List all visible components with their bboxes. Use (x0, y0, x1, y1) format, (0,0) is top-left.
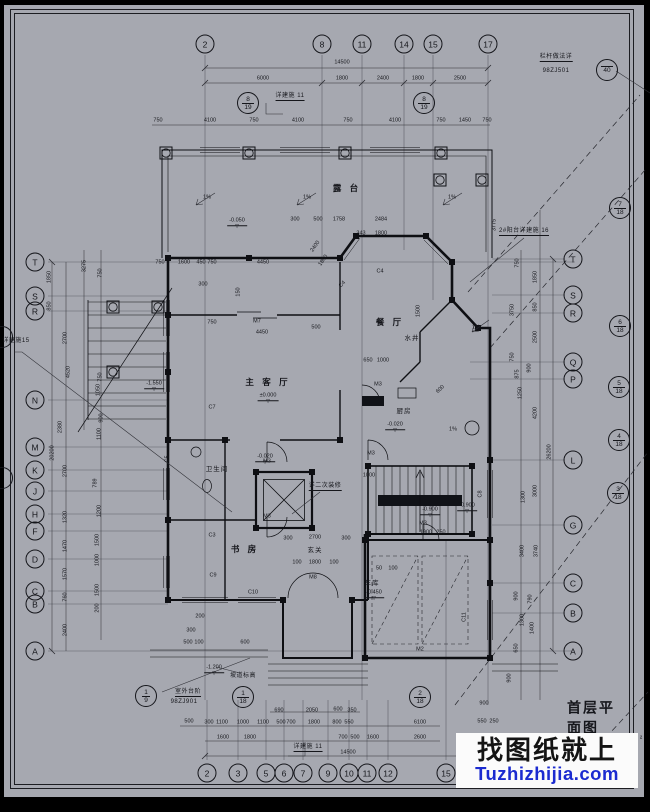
dimension-label: 2400 (377, 76, 389, 82)
room-label: 玄关 (308, 548, 323, 555)
dimension-label: 3750 (510, 304, 516, 316)
note-label: 98ZJ901 (171, 699, 198, 705)
room-label: 车库 (365, 581, 380, 588)
section-sheet-no: 8 (246, 96, 250, 103)
dimension-label: 1000 (377, 358, 389, 364)
dimension-label: 550 (477, 719, 486, 725)
dimension-label: 750 (98, 372, 104, 381)
opening-tag: C7 (208, 405, 215, 411)
note-label: 栏杆做法详 (540, 54, 573, 62)
dimension-label: 4100 (292, 118, 304, 124)
dimension-label: 850 (47, 301, 53, 310)
dimension-label: 1800 (375, 231, 387, 237)
section-sheet-no: 8 (422, 96, 426, 103)
dimension-label: 1600 (217, 735, 229, 741)
dimension-label: 1800 (244, 735, 256, 741)
grid-bubble-left: A (26, 642, 45, 661)
dimension-label: 1400 (530, 622, 536, 634)
dimension-label: 500 (313, 217, 322, 223)
opening-tag: C8 (478, 490, 484, 497)
dimension-label: 4100 (389, 118, 401, 124)
dimension-label: 790 (528, 594, 534, 603)
section-mark: 318 (607, 482, 629, 504)
section-mark: 518 (608, 376, 630, 398)
section-sheet-no: 2 (418, 690, 422, 697)
section-page-no: 19 (242, 103, 253, 111)
dimension-label: 300 (198, 282, 207, 288)
note-label: 98ZJ501 (543, 68, 570, 74)
dimension-label: 200 (195, 614, 204, 620)
dimension-label: 900 (507, 673, 513, 682)
dimension-label: 1800 (336, 76, 348, 82)
note-label: 室外台阶 (175, 689, 201, 697)
dimension-label: 500 (184, 719, 193, 725)
section-mark: 40 (596, 59, 618, 81)
dimension-label: 800 (332, 720, 341, 726)
section-page-no: 18 (612, 493, 623, 501)
dimension-label: 300 (290, 217, 299, 223)
dimension-label: 14500 (340, 750, 355, 756)
room-label: 主 客 厅 (245, 378, 290, 387)
grid-bubble-left: F (26, 522, 45, 541)
section-mark: 819 (413, 92, 435, 114)
dimension-label: 1450 (459, 118, 471, 124)
dimension-label: 750 (153, 118, 162, 124)
dashed-lines (455, 95, 648, 760)
dimension-label: 1000 (95, 554, 101, 566)
dimension-label: 750 (207, 320, 216, 326)
grid-bubble-right: R (564, 304, 583, 323)
dimension-label: 4450 (257, 260, 269, 266)
dimension-label: 1% (303, 195, 311, 201)
dimension-label: 1320 (63, 511, 69, 523)
dimension-label: 1100 (216, 720, 228, 726)
note-label: 详二次装修 (309, 483, 342, 491)
elevation-label: ±0.000 (258, 393, 279, 401)
dimension-label: 4520 (66, 366, 72, 378)
leader-lines (14, 71, 650, 756)
dimension-label: 750 (482, 118, 491, 124)
opening-tag: C5 (165, 455, 171, 462)
grid-bubble-bottom: 6 (275, 764, 294, 783)
elevation-label: -0.900 (420, 507, 440, 515)
grid-bubble-bottom: 10 (340, 764, 359, 783)
room-label: 水井 (405, 336, 420, 343)
watermark-site-url: Tuzhizhijia.com (475, 764, 619, 783)
wall-junctions (165, 233, 493, 661)
dimension-label: 4450 (256, 330, 268, 336)
dimension-label: 300 (204, 720, 213, 726)
grid-bubble-bottom: 9 (319, 764, 338, 783)
grid-bubble-bottom: 3 (229, 764, 248, 783)
dimension-label: 2600 (414, 735, 426, 741)
elevation-label: -0.050 (227, 218, 247, 226)
elevation-label: -0.020 (385, 422, 405, 430)
dimension-label: 750 (155, 260, 164, 266)
dimension-label: 2484 (375, 217, 387, 223)
grid-bubble-top: 8 (313, 35, 332, 54)
room-label: 露 台 (333, 184, 361, 193)
dimension-label: 900 (479, 701, 488, 707)
grid-bubble-bottom: 2 (198, 764, 217, 783)
dimension-label: 1500 (95, 534, 101, 546)
opening-tag: C10 (248, 590, 258, 596)
dimension-label: 100 (292, 560, 301, 566)
grid-bubble-bottom: 12 (379, 764, 398, 783)
dimension-label: 500 (350, 735, 359, 741)
dimension-label: 1500 (95, 584, 101, 596)
grid-bubble-right: P (564, 370, 583, 389)
dimension-label: 26200 (547, 444, 553, 459)
section-mark: 819 (237, 92, 259, 114)
dimension-label: 1800 (308, 720, 320, 726)
dimension-label: 6100 (414, 720, 426, 726)
grid-bubble-right: G (564, 516, 583, 535)
opening-tag: M3 (367, 451, 375, 457)
grid-bubble-left: M (26, 438, 45, 457)
grid-bubble-top: 17 (479, 35, 498, 54)
dimension-label: 6000 (257, 76, 269, 82)
dimension-label: 1050 (96, 384, 102, 396)
section-mark: 118 (232, 686, 254, 708)
opening-tag: M3 (419, 521, 427, 527)
grid-bubble-left: D (26, 550, 45, 569)
grid-bubble-right: T (564, 250, 583, 269)
dimension-label: 789 (93, 478, 99, 487)
grid-bubble-left: B (26, 595, 45, 614)
section-mark: 418 (608, 429, 630, 451)
section-page-no: 19 (418, 103, 429, 111)
dimension-label: 300 (283, 536, 292, 542)
dimension-label: 350 (347, 708, 356, 714)
dimension-label: 3775 (492, 219, 498, 231)
watermark: 找图纸就上 Tuzhizhijia.com (456, 733, 638, 788)
section-page-no: 18 (614, 326, 625, 334)
section-mark: 19 (135, 685, 157, 707)
dimension-label: 760 (63, 592, 69, 601)
dimension-label: 2700 (63, 332, 69, 344)
dimension-label: 750 (436, 118, 445, 124)
dimension-label: 250 (489, 719, 498, 725)
opening-tag: M2 (416, 647, 424, 653)
dimension-label: 2700 (63, 465, 69, 477)
opening-tag: M3 (263, 459, 271, 465)
watermark-text-cn: 找图纸就上 (477, 737, 617, 764)
section-sheet-no: 4 (617, 433, 621, 440)
dimension-label: 1800 (412, 76, 424, 82)
dimension-label: 150 (236, 287, 242, 296)
section-page-no: 18 (237, 697, 248, 705)
dimension-label: 4200 (533, 407, 539, 419)
grid-bubble-top: 11 (353, 35, 372, 54)
opening-tag: C11 (462, 612, 468, 622)
grid-bubble-bottom: 5 (257, 764, 276, 783)
note-label: 2#阳台详建施 16 (499, 228, 549, 236)
dimension-label: 1500 (416, 305, 422, 317)
dimension-label: 1100 (97, 428, 103, 440)
opening-tag: M8 (309, 575, 317, 581)
dimension-label: 50 (376, 566, 382, 572)
dimension-label: 1% (448, 195, 456, 201)
section-sheet-no: 1 (144, 689, 148, 696)
dimension-label: 1600 (367, 735, 379, 741)
grid-bubble-bottom: 11 (358, 764, 377, 783)
grid-lines (48, 55, 575, 760)
dimension-label: 875 (515, 369, 521, 378)
dimension-label: 500 (311, 325, 320, 331)
dimension-label: 750 (343, 118, 352, 124)
dimension-label: 2400 (63, 624, 69, 636)
room-label: 厨房 (397, 409, 412, 416)
floor-plan-drawing (0, 0, 650, 812)
grid-bubble-right: C (564, 574, 583, 593)
dimension-label: 690 (274, 708, 283, 714)
grid-bubble-right: L (564, 451, 583, 470)
dimension-label: 2500 (454, 76, 466, 82)
dimension-label: 250 (436, 530, 445, 536)
dimension-label: 750 (98, 268, 104, 277)
section-sheet-no: 3 (616, 486, 620, 493)
elevation-label: -1.550 (144, 381, 164, 389)
section-mark: 718 (609, 197, 631, 219)
opening-tag: M7 (253, 319, 261, 325)
dimension-label: 700 (286, 720, 295, 726)
section-mark: 218 (409, 686, 431, 708)
elevation-label: -0.450 (364, 590, 384, 598)
dimension-label: 600 (333, 707, 342, 713)
section-mark: 618 (609, 315, 631, 337)
dimension-label: 300 (341, 536, 350, 542)
dimension-label: 1100 (257, 720, 269, 726)
dimension-label: 14500 (334, 60, 349, 66)
dimension-label: 900 (99, 413, 105, 422)
dimension-label: 1% (449, 427, 457, 433)
dimension-label: 1200 (97, 505, 103, 517)
grid-bubble-top: 15 (424, 35, 443, 54)
dimension-label: 750 (515, 258, 521, 267)
dimension-label: 3740 (534, 545, 540, 557)
walls (78, 148, 558, 686)
grid-bubble-left: J (26, 482, 45, 501)
dimension-label: 3275 (82, 260, 88, 272)
dimension-label: 200 (95, 603, 101, 612)
dimension-label: 1850 (533, 271, 539, 283)
grid-bubble-right: A (564, 642, 583, 661)
section-sheet-no: 1 (241, 690, 245, 697)
room-label: 书 房 (231, 545, 259, 554)
dimension-label: 1250 (518, 387, 524, 399)
dimension-label: 100 (388, 566, 397, 572)
dimension-label: 1758 (333, 217, 345, 223)
dimension-label: 20200 (50, 445, 56, 460)
dimension-label: 900 (514, 591, 520, 600)
section-page-no: 9 (142, 696, 150, 704)
area-text-fragment: ² (640, 736, 642, 743)
dimension-label: 2700 (309, 535, 321, 541)
garage-dashed-bays (372, 556, 468, 644)
dimension-label: 650 (514, 643, 520, 652)
dimension-label: 1000 (237, 720, 249, 726)
dimension-label: 750 (249, 118, 258, 124)
dimension-label: 343 (356, 231, 365, 237)
opening-tag: M3 (263, 514, 271, 520)
dimension-label: 4100 (204, 118, 216, 124)
blueprint-sheet: 栏杆做法详98ZJ501详建施 112#阳台详建施 16详建施15详二次装修室外… (0, 0, 650, 812)
dimension-label: 500 (276, 720, 285, 726)
grid-bubble-bottom: 15 (437, 764, 456, 783)
elevation-label: -1.200 (204, 665, 224, 673)
opening-tag: C3 (208, 533, 215, 539)
section-sheet-no: 7 (618, 201, 622, 208)
dimension-label: 1470 (63, 540, 69, 552)
dimension-label: 700 (338, 735, 347, 741)
dimension-label: 450 (196, 260, 205, 266)
elevation-label: -0.900 (457, 503, 477, 511)
section-page-no: 18 (414, 697, 425, 705)
opening-tag: C9 (209, 573, 216, 579)
dimension-label: 600 (240, 640, 249, 646)
room-label: 餐 厅 (376, 318, 404, 327)
dimension-label: 1900 (420, 530, 432, 536)
dimension-label: 1300 (521, 491, 527, 503)
section-sheet-no: 6 (618, 319, 622, 326)
room-label: 卫生间 (206, 467, 229, 474)
dimension-label: 2500 (533, 331, 539, 343)
section-page-no: 40 (601, 66, 612, 74)
grid-bubble-left: R (26, 302, 45, 321)
dimension-lines (49, 65, 556, 759)
grid-bubble-left: N (26, 391, 45, 410)
dimension-label: 850 (533, 302, 539, 311)
dimension-label: 1300 (520, 614, 526, 626)
dimension-label: 2380 (58, 421, 64, 433)
section-page-no: 18 (613, 440, 624, 448)
dimension-label: 100 (194, 640, 203, 646)
dimension-label: 1% (472, 325, 480, 331)
grid-bubble-top: 14 (395, 35, 414, 54)
dimension-label: 650 (363, 358, 372, 364)
dimension-label: 1600 (178, 260, 190, 266)
dimension-label: 100 (329, 560, 338, 566)
dimension-label: 1% (203, 195, 211, 201)
section-page-no: 18 (614, 208, 625, 216)
dimension-label: 750 (510, 352, 516, 361)
dimension-label: 750 (207, 260, 216, 266)
note-label: 详建施 11 (276, 93, 305, 101)
dimension-label: 1570 (63, 568, 69, 580)
dimension-label: 300 (186, 628, 195, 634)
dimension-label: 2050 (306, 708, 318, 714)
dimension-label: 3000 (533, 485, 539, 497)
dimension-label: 1850 (47, 271, 53, 283)
section-page-no: 18 (613, 387, 624, 395)
dimension-label: 500 (183, 640, 192, 646)
opening-tag: M3 (374, 382, 382, 388)
opening-tag: C4 (376, 269, 383, 275)
dimension-label: 1800 (309, 560, 321, 566)
grid-bubble-right: B (564, 604, 583, 623)
note-label: 坡道标高 (230, 673, 256, 679)
note-label: 详建施 11 (294, 744, 323, 752)
grid-bubble-left: K (26, 461, 45, 480)
dimension-label: 900 (527, 363, 533, 372)
grid-bubble-bottom: 7 (294, 764, 313, 783)
grid-bubble-right: S (564, 286, 583, 305)
section-sheet-no: 5 (617, 380, 621, 387)
grid-bubble-left: T (26, 253, 45, 272)
dimension-label: 1000 (363, 473, 375, 479)
dimension-label: 3400 (520, 545, 526, 557)
grid-bubble-top: 2 (196, 35, 215, 54)
dimension-label: 550 (344, 720, 353, 726)
